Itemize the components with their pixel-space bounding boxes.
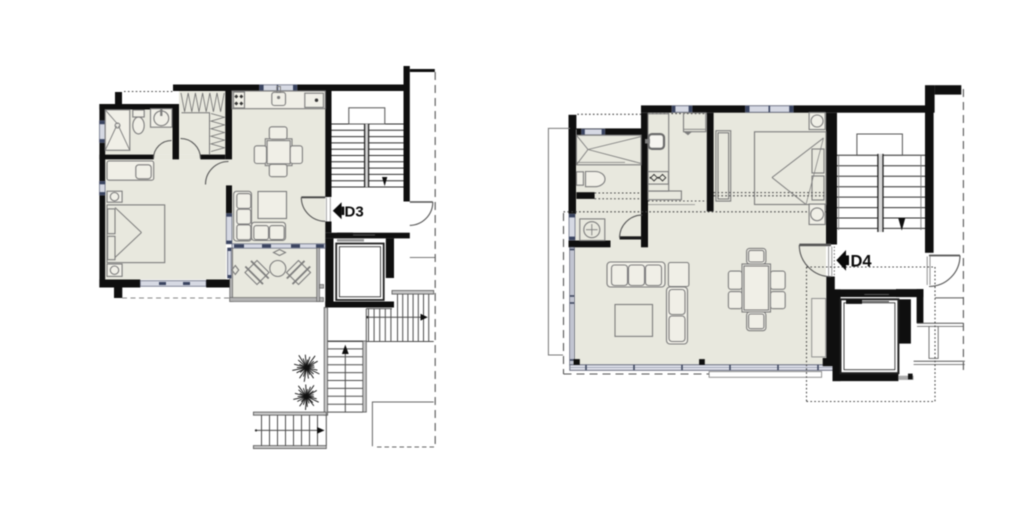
svg-text:D3: D3 [345,204,364,221]
svg-text:D4: D4 [851,253,873,271]
